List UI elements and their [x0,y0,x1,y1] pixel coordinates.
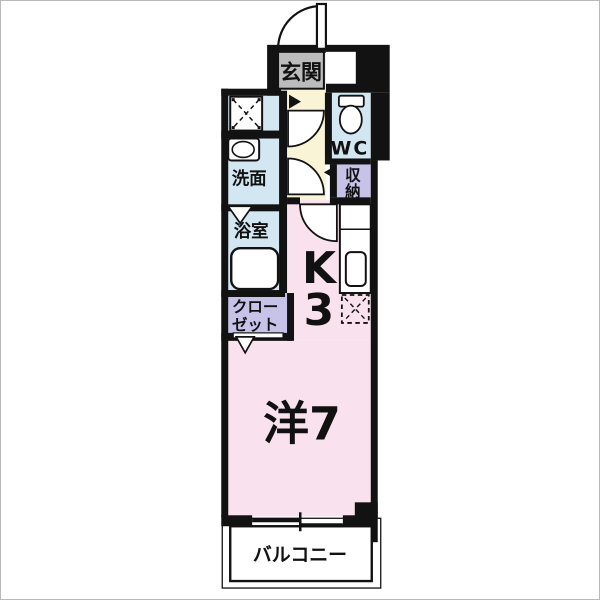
wash-basin [228,139,259,161]
entrance-door-swing-arc [278,6,321,49]
wall-left [221,89,228,518]
washing-machine-pan [230,97,262,131]
entrance-door [278,4,326,49]
label-kitchen-3: 3 [304,285,335,336]
label-yokushitsu: 浴室 [234,221,269,242]
label-closet-2: ゼット [232,315,278,334]
kitchen-sink [346,252,366,286]
label-balcony: バルコニー [253,544,347,566]
wall-yokushitsu-closet [221,290,285,297]
entry-alcove [326,52,356,84]
label-senmen: 洗面 [232,168,267,189]
floor-plan: 玄関 WC 洗面 収 納 浴室 クロー ゼット K 3 洋7 バルコニー [0,0,600,600]
label-genkan: 玄関 [280,61,322,85]
wall-k-doorway-left [287,197,300,204]
wall-under-washer [221,131,287,139]
toilet [339,96,364,134]
kitchen-counter [340,204,371,293]
wall-hall-left [279,91,287,293]
entrance-door-leaf [317,4,326,49]
bathtub [231,248,278,289]
wall-right-upper [371,93,390,161]
label-wc: WC [330,137,369,159]
wall-senmen-top [221,89,281,96]
label-western-room: 洋7 [263,397,341,451]
label-shunou-2: 納 [345,181,360,200]
wall-right [371,160,378,517]
label-closet-1: クロー [232,298,278,316]
wall-bottom-left [221,515,252,526]
